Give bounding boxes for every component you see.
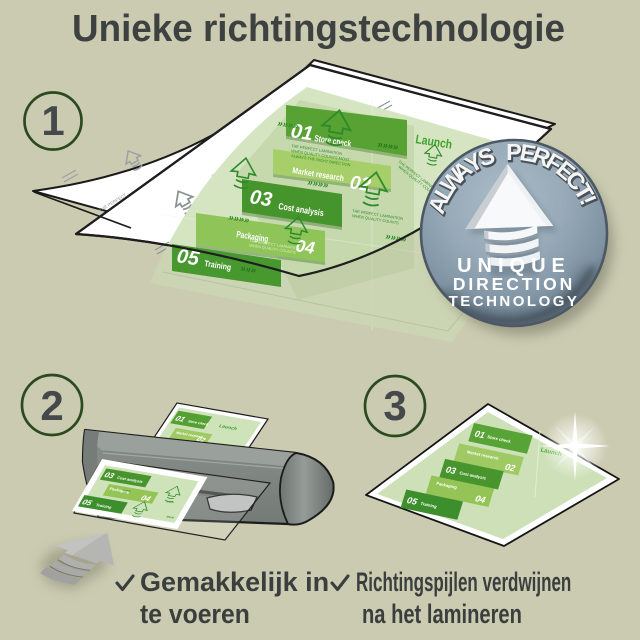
svg-text:03: 03 [248,186,273,211]
svg-text:2: 2 [40,382,63,429]
svg-text:Richtingspijlen verdwijnen: Richtingspijlen verdwijnen [356,567,571,597]
svg-text:te voeren: te voeren [140,600,250,629]
svg-text:DIRECTION: DIRECTION [453,274,575,294]
svg-text:na het lamineren: na het lamineren [362,599,522,630]
svg-text:TECHNOLOGY: TECHNOLOGY [449,293,580,310]
svg-text:3: 3 [383,382,406,429]
svg-text:Gemakkelijk in: Gemakkelijk in [140,567,329,597]
